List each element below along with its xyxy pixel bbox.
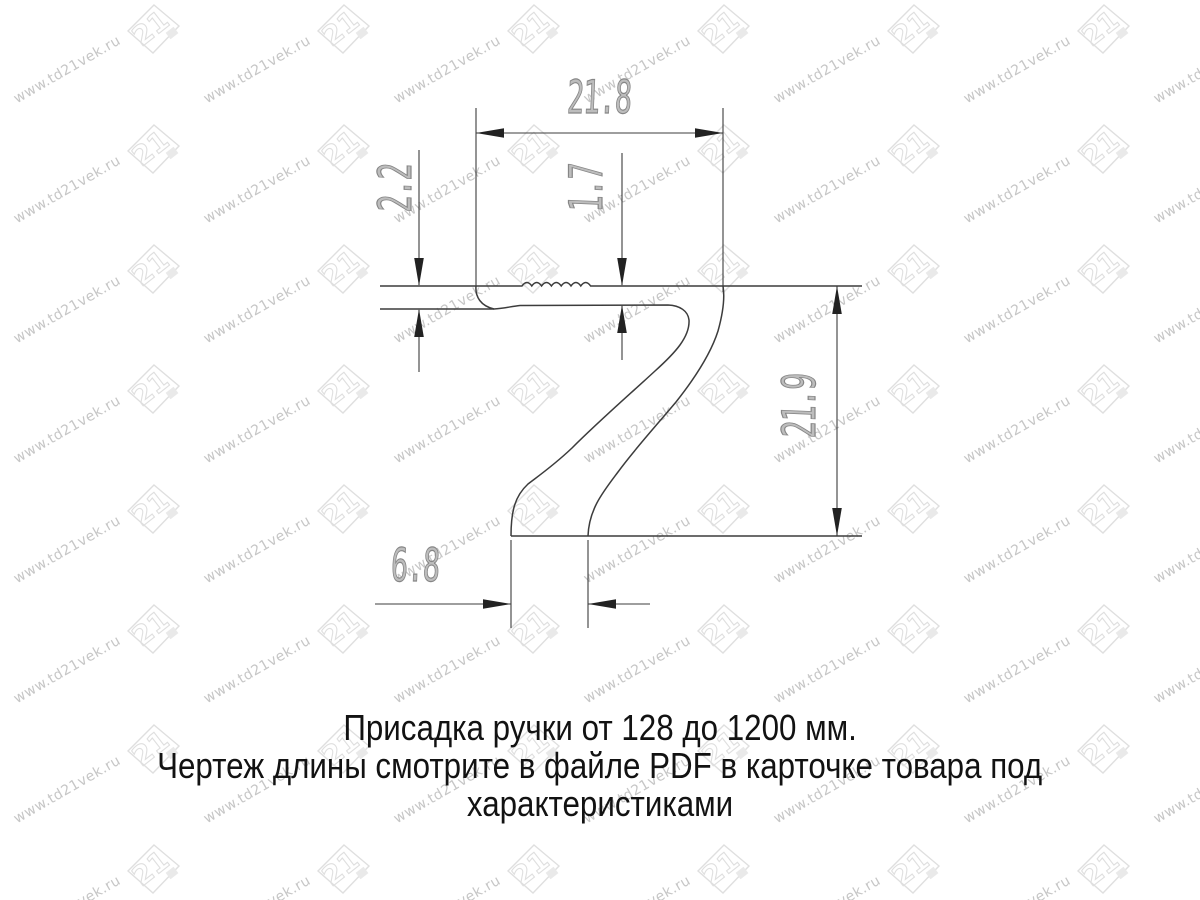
arrow-6-8-right bbox=[483, 599, 511, 609]
profile-outer-curve bbox=[588, 286, 724, 536]
note-line-1: Присадка ручки от 128 до 1200 мм. bbox=[343, 709, 857, 747]
arrow-21-8-left bbox=[476, 128, 504, 138]
product-note: Присадка ручки от 128 до 1200 мм. Чертеж… bbox=[0, 709, 1200, 823]
arrow-2-2-down bbox=[414, 258, 424, 286]
drawing-canvas: www.td21vek.ru21www.td21vek.ru21www.td21… bbox=[0, 0, 1200, 900]
dimension-label-top-width: 21.8 bbox=[566, 74, 632, 120]
arrow-21-8-right bbox=[695, 128, 723, 138]
arrow-6-8-left bbox=[588, 599, 616, 609]
dimension-label-wall-thickness: 1.7 bbox=[563, 163, 609, 213]
arrow-21-9-up bbox=[832, 286, 842, 314]
profile-inner-curve bbox=[476, 286, 689, 536]
arrow-21-9-down bbox=[832, 508, 842, 536]
profile-top-line bbox=[380, 283, 862, 287]
arrow-2-2-up bbox=[414, 309, 424, 337]
note-line-3: характеристиками bbox=[467, 785, 733, 823]
dimension-label-height: 21.9 bbox=[776, 373, 822, 439]
dimension-label-flange-thickness: 2.2 bbox=[372, 163, 418, 213]
arrow-1-7-up bbox=[617, 305, 627, 333]
note-line-2: Чертеж длины смотрите в файле PDF в карт… bbox=[157, 747, 1042, 785]
arrow-1-7-down bbox=[617, 258, 627, 286]
dimension-label-foot-width: 6.8 bbox=[390, 542, 440, 588]
